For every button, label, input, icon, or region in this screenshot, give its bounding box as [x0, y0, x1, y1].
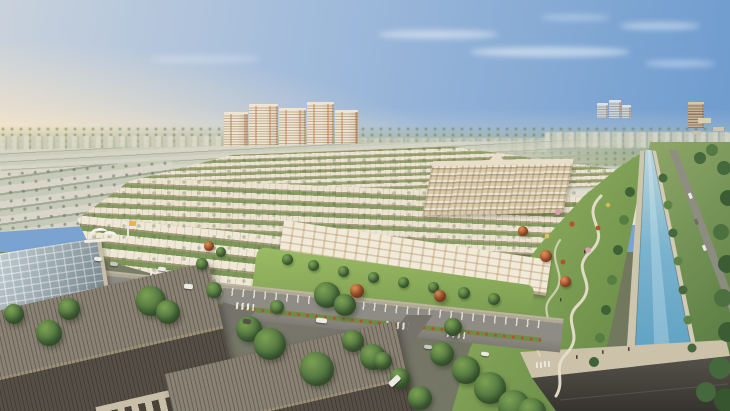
street-tree [282, 254, 293, 265]
street-tree [338, 266, 349, 277]
car [94, 257, 102, 262]
tree [270, 300, 284, 314]
flag [129, 221, 136, 226]
tree [254, 328, 286, 360]
car [158, 267, 166, 272]
tree [4, 304, 24, 324]
tree [444, 318, 462, 336]
tree [334, 294, 356, 316]
street-tree [196, 258, 208, 270]
street-tree [308, 260, 319, 271]
car [110, 262, 118, 267]
tree [408, 386, 432, 410]
tree [300, 352, 334, 386]
flowering-tree [350, 284, 364, 298]
tree [430, 342, 454, 366]
car [184, 284, 193, 289]
flowering-tree [540, 250, 552, 262]
car [481, 352, 489, 357]
tree [156, 300, 180, 324]
street-tree [488, 293, 500, 305]
street-tree [368, 272, 379, 283]
tree [36, 320, 62, 346]
distant-rooftop [692, 131, 701, 135]
street-tree [216, 247, 226, 257]
distant-rooftop [713, 127, 724, 131]
tree [58, 298, 80, 320]
car [243, 319, 251, 324]
tree [206, 282, 222, 298]
flowering-tree [204, 241, 214, 251]
flowering-tree [560, 276, 571, 287]
car [424, 345, 432, 350]
tree [374, 352, 392, 370]
flowering-tree [434, 290, 446, 302]
tree [342, 330, 364, 352]
distant-rooftop [698, 118, 711, 123]
street-tree [458, 287, 470, 299]
aerial-rendering [0, 0, 730, 411]
flowering-tree [518, 226, 528, 236]
street-tree [398, 277, 409, 288]
